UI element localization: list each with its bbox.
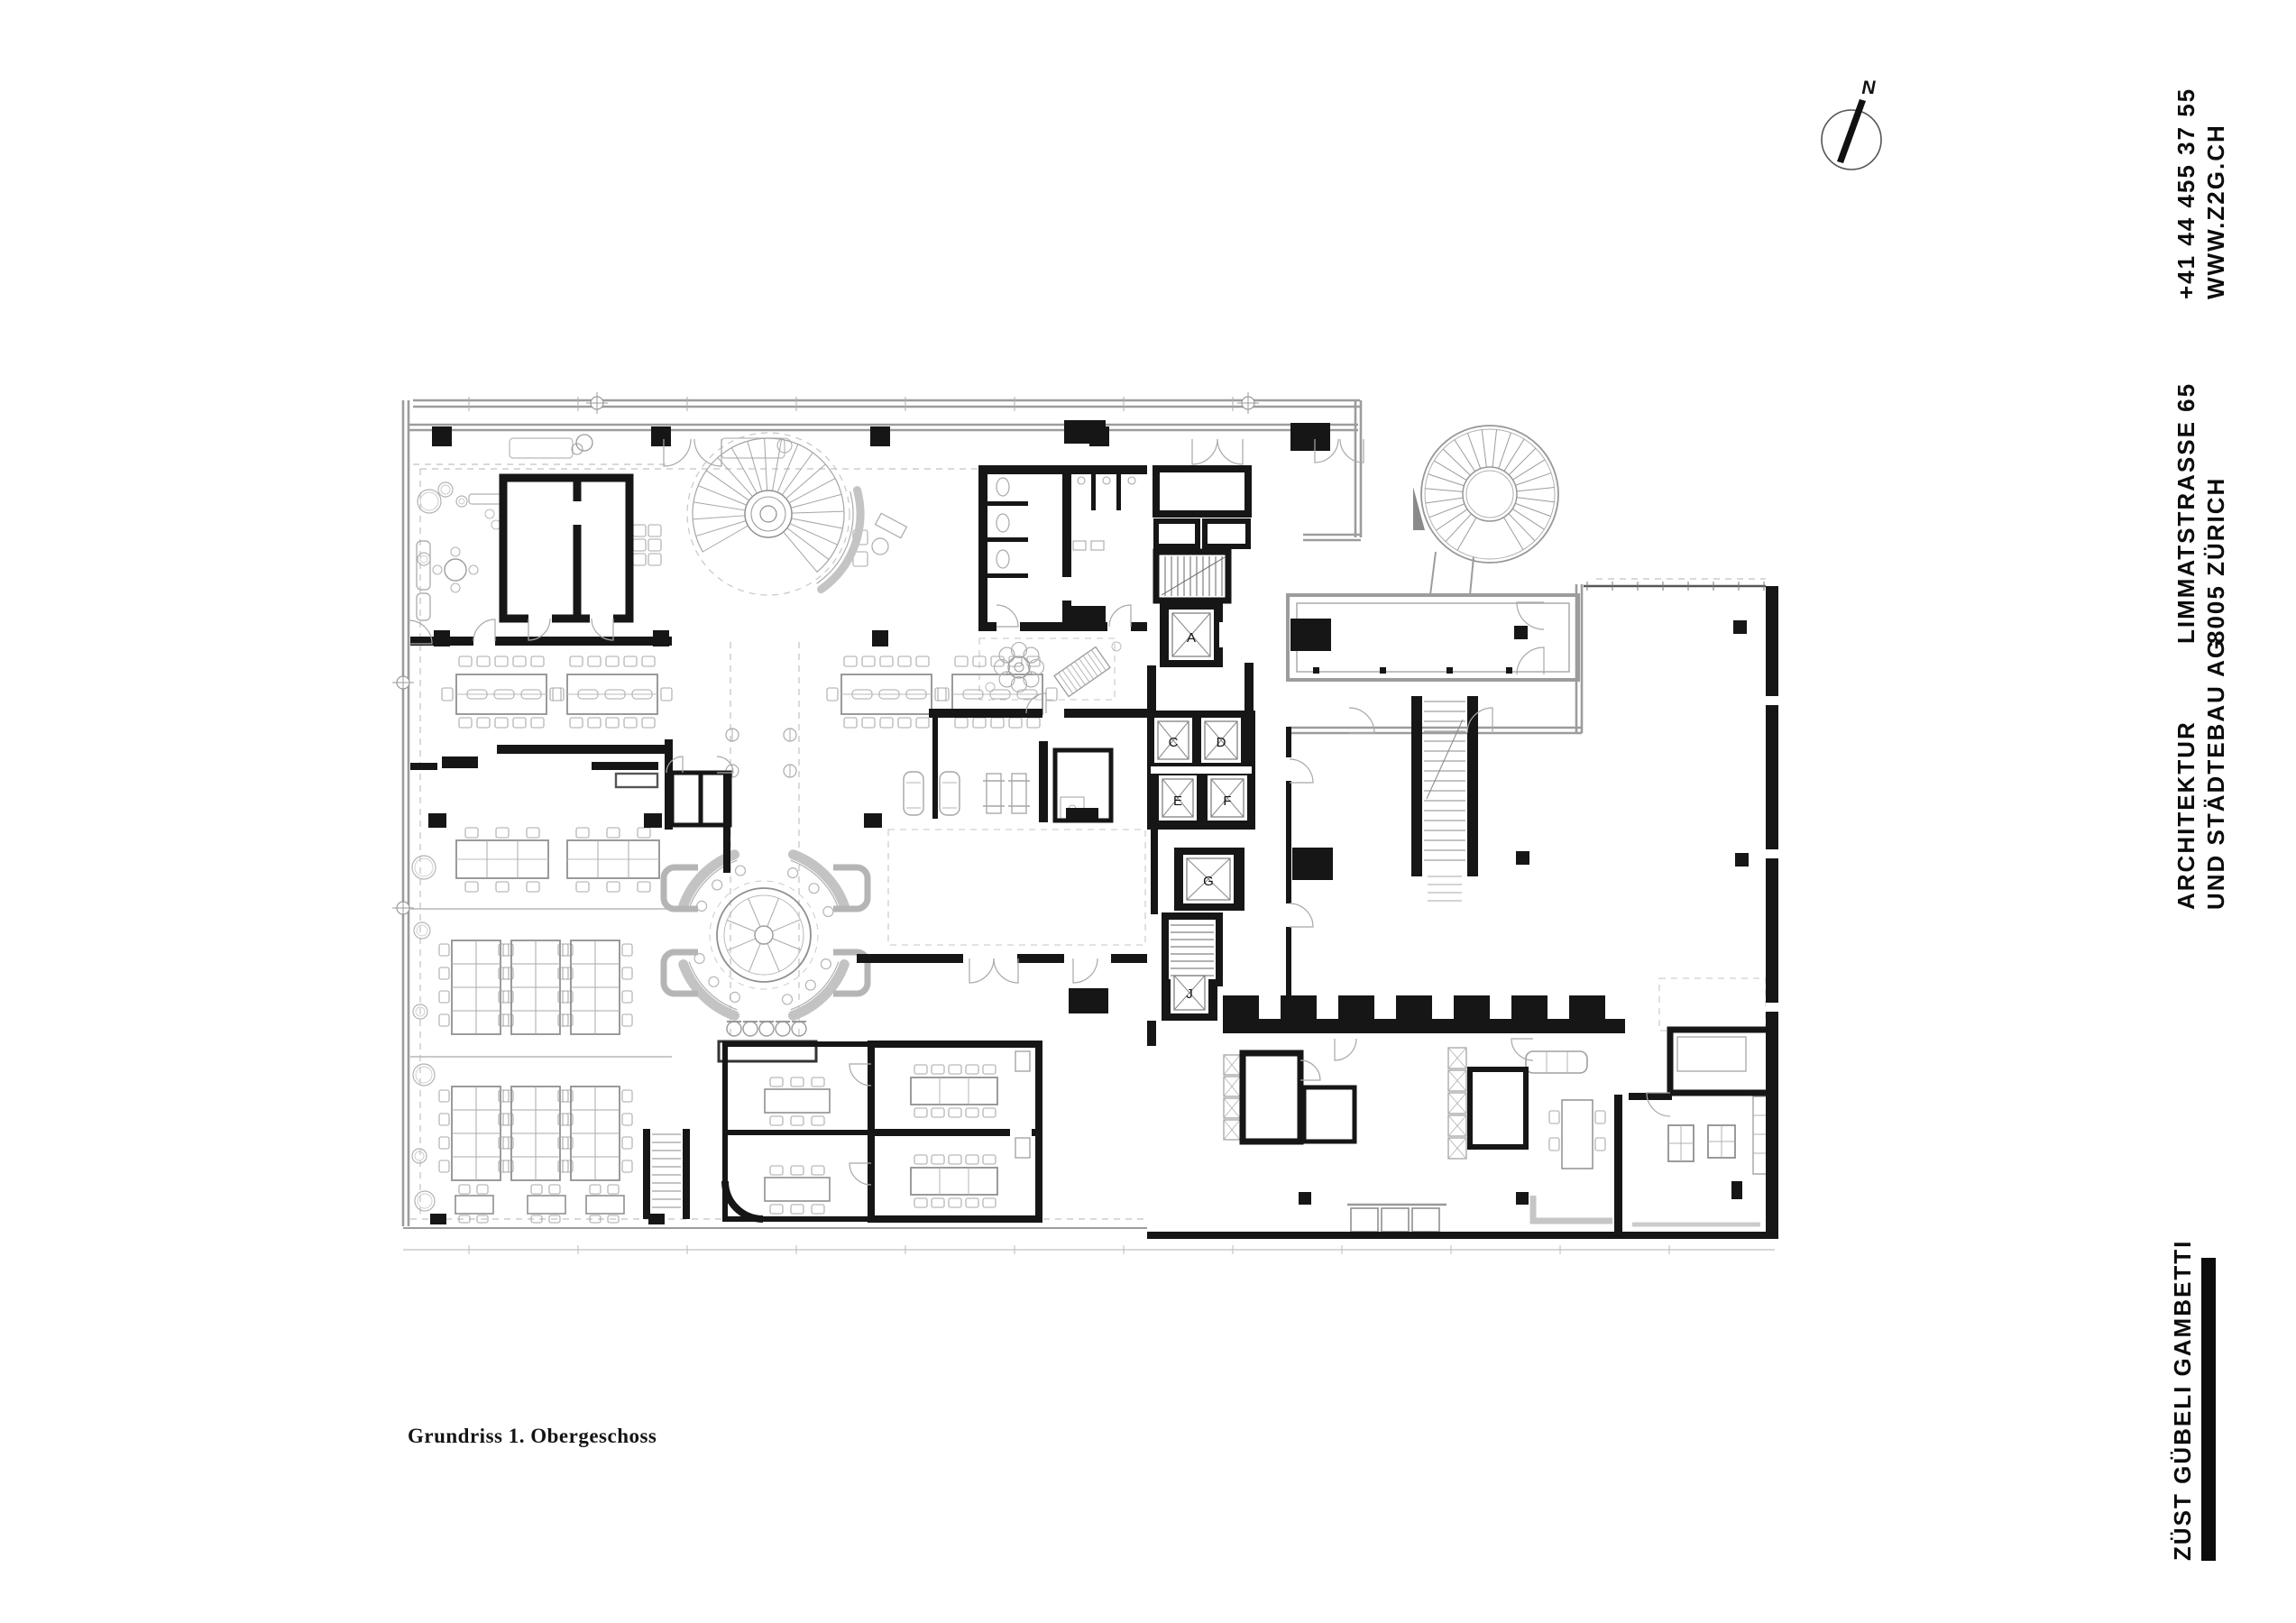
brand-bar — [2201, 1258, 2216, 1561]
north-label: N — [1861, 78, 1876, 98]
walls-layer — [410, 420, 1778, 1239]
sidebar-contact: +41 44 455 37 55 WWW.Z2G.CH — [2172, 87, 2231, 299]
sidebar-address: LIMMATSTRASSE 65 8005 ZÜRICH — [2172, 382, 2231, 644]
elevator-label: E — [1173, 793, 1182, 809]
website-text: WWW.Z2G.CH — [2201, 87, 2231, 299]
elevator-label: A — [1187, 630, 1196, 646]
sheet: A C D E F G J N +41 44 455 37 55 WWW.Z2G… — [0, 0, 2296, 1623]
firm-line2: UND STÄDTEBAU AG — [2201, 638, 2231, 910]
firm-line1: ARCHITEKTUR — [2172, 638, 2201, 910]
city-text: 8005 ZÜRICH — [2201, 382, 2231, 644]
elevator-label: D — [1217, 735, 1226, 750]
street-text: LIMMATSTRASSE 65 — [2172, 382, 2201, 644]
elevator-label: F — [1223, 793, 1231, 809]
facade-layer — [392, 392, 1775, 1254]
plan-caption: Grundriss 1. Obergeschoss — [408, 1425, 657, 1448]
sidebar-firm: ARCHITEKTUR UND STÄDTEBAU AG — [2172, 638, 2231, 910]
elevator-label: C — [1169, 735, 1179, 750]
north-arrow: N — [1822, 78, 1881, 170]
elevator-label: G — [1203, 874, 1214, 889]
elevator-label: J — [1186, 986, 1193, 1002]
brand-text: ZÜST GÜBELI GAMBETTI — [2168, 1240, 2198, 1561]
north-arrow-needle — [1837, 99, 1866, 163]
sidebar-brand: ZÜST GÜBELI GAMBETTI — [2168, 1240, 2198, 1561]
furniture-layer — [412, 426, 1768, 1237]
floor-plan-drawing: A C D E F G J N — [0, 0, 2296, 1623]
phone-text: +41 44 455 37 55 — [2172, 87, 2201, 299]
